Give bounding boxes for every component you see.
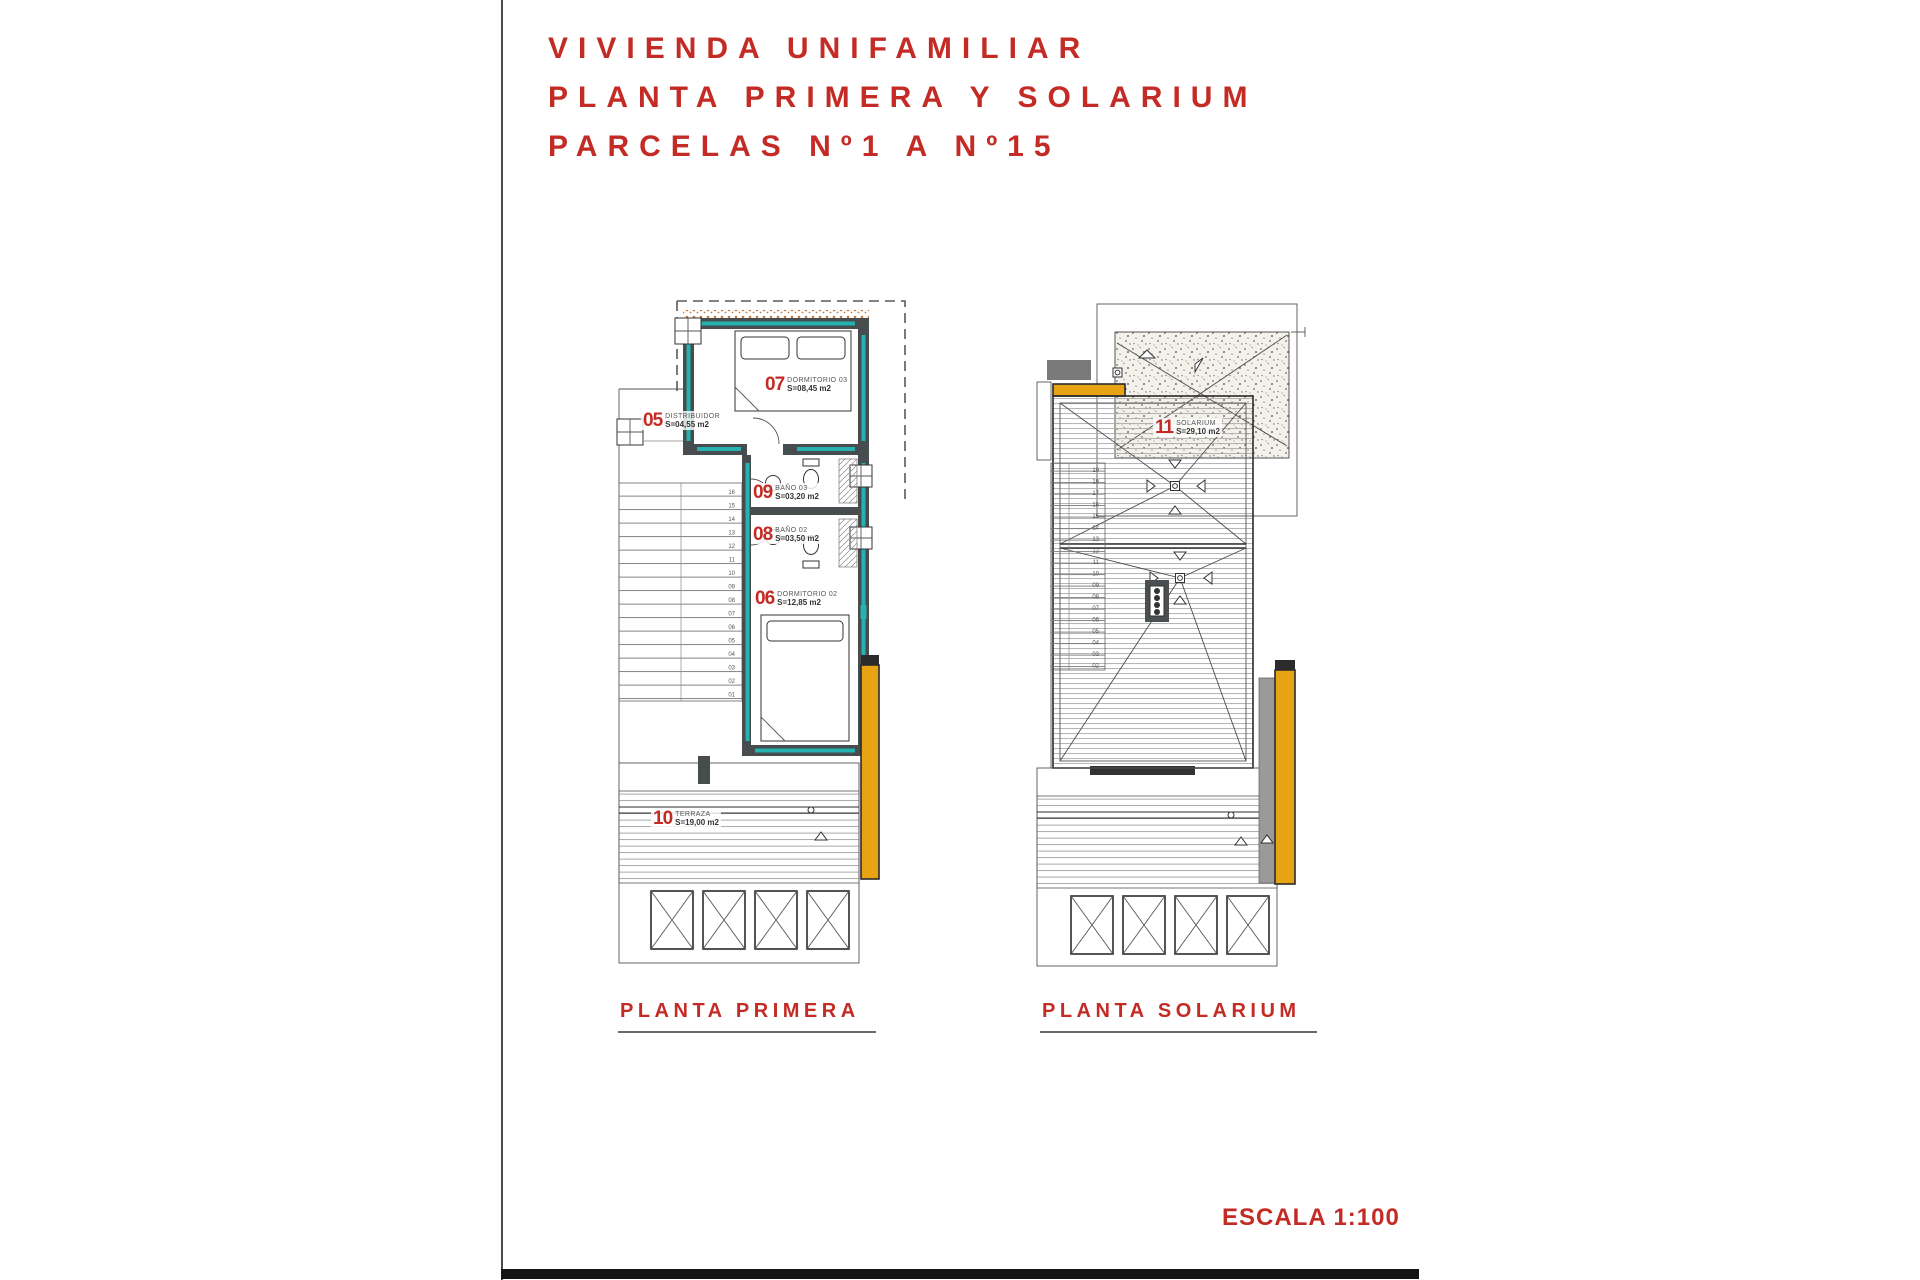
sheet-bottom-bar bbox=[501, 1269, 1419, 1279]
room-label-terraza: 10 TERRAZA S=19,00 m2 bbox=[651, 809, 721, 828]
svg-text:07: 07 bbox=[728, 612, 735, 618]
orange-balcony-bar bbox=[861, 655, 879, 879]
room-area: S=12,85 m2 bbox=[777, 599, 837, 607]
room-name: SOLARIUM bbox=[1176, 420, 1220, 427]
floor-plan-primera-drawing: 16151413121110090807060504030201 bbox=[615, 293, 910, 983]
svg-text:14: 14 bbox=[728, 517, 735, 523]
svg-text:04: 04 bbox=[1092, 641, 1099, 647]
bed-icon-dormitorio-03 bbox=[735, 331, 851, 411]
svg-text:16: 16 bbox=[1092, 503, 1099, 509]
svg-text:14: 14 bbox=[1092, 526, 1099, 532]
room-area: S=08,45 m2 bbox=[787, 385, 847, 393]
door-swing bbox=[753, 418, 779, 444]
svg-text:08: 08 bbox=[728, 598, 735, 604]
plan-caption-solarium: PLANTA SOLARIUM bbox=[1040, 1000, 1317, 1033]
svg-text:09: 09 bbox=[728, 585, 735, 591]
drain-icon bbox=[1176, 574, 1185, 583]
bed-icon-dormitorio-02 bbox=[761, 615, 849, 741]
brick-fringe bbox=[683, 310, 869, 318]
floor-plan-solarium: 191817161514131211100908070605040302 bbox=[1035, 298, 1345, 978]
svg-text:11: 11 bbox=[729, 558, 736, 564]
room-number: 07 bbox=[765, 376, 784, 393]
shower-icon bbox=[839, 519, 857, 567]
svg-text:05: 05 bbox=[728, 639, 735, 645]
svg-text:07: 07 bbox=[1092, 606, 1099, 612]
room-area: S=29,10 m2 bbox=[1176, 428, 1220, 436]
room-name: BAÑO 02 bbox=[775, 527, 819, 534]
room-number: 08 bbox=[753, 526, 772, 543]
svg-text:02: 02 bbox=[1092, 664, 1099, 670]
terrace-deck bbox=[1037, 768, 1277, 966]
svg-text:08: 08 bbox=[1092, 595, 1099, 601]
drain-icon bbox=[1171, 482, 1180, 491]
svg-text:19: 19 bbox=[1092, 468, 1099, 474]
room-name: TERRAZA bbox=[675, 811, 719, 818]
window-icon bbox=[675, 318, 701, 344]
svg-text:13: 13 bbox=[1092, 537, 1099, 543]
svg-text:04: 04 bbox=[728, 652, 735, 658]
svg-text:06: 06 bbox=[728, 625, 735, 631]
drain-icon bbox=[1113, 368, 1122, 377]
chimney-icon bbox=[1145, 580, 1169, 622]
grey-wall-strip bbox=[1259, 678, 1275, 883]
svg-text:15: 15 bbox=[728, 504, 735, 510]
room-number: 09 bbox=[753, 484, 772, 501]
svg-text:11: 11 bbox=[1093, 560, 1100, 566]
svg-text:12: 12 bbox=[1092, 549, 1099, 555]
room-label-dormitorio-02: 06 DORMITORIO 02 S=12,85 m2 bbox=[753, 589, 839, 608]
svg-text:13: 13 bbox=[728, 531, 735, 537]
shower-icon bbox=[839, 459, 857, 503]
room-label-distribuidor: 05 DISTRIBUIDOR S=04,55 m2 bbox=[641, 411, 722, 430]
title-line-3: PARCELAS Nº1 A Nº15 bbox=[548, 122, 1257, 171]
sheet-border-line bbox=[501, 0, 503, 1280]
svg-text:10: 10 bbox=[1092, 572, 1099, 578]
room-area: S=19,00 m2 bbox=[675, 819, 719, 827]
terrace-deck bbox=[619, 756, 859, 963]
room-label-dormitorio-03: 07 DORMITORIO 03 S=08,45 m2 bbox=[763, 375, 849, 394]
room-label-bano-03: 09 BAÑO 03 S=03,20 m2 bbox=[751, 483, 821, 502]
room-number: 06 bbox=[755, 590, 774, 607]
floor-plan-primera: 16151413121110090807060504030201 bbox=[615, 293, 910, 983]
drawing-sheet: VIVIENDA UNIFAMILIAR PLANTA PRIMERA Y SO… bbox=[0, 0, 1920, 1280]
svg-text:03: 03 bbox=[1092, 652, 1099, 658]
svg-text:02: 02 bbox=[728, 679, 735, 685]
room-number: 05 bbox=[643, 412, 662, 429]
svg-text:15: 15 bbox=[1092, 514, 1099, 520]
plan-caption-primera: PLANTA PRIMERA bbox=[618, 1000, 876, 1033]
room-number: 11 bbox=[1155, 419, 1173, 436]
title-line-2: PLANTA PRIMERA Y SOLARIUM bbox=[548, 73, 1257, 122]
svg-text:18: 18 bbox=[1092, 480, 1099, 486]
svg-text:17: 17 bbox=[1092, 491, 1099, 497]
title-line-1: VIVIENDA UNIFAMILIAR bbox=[548, 24, 1257, 73]
room-area: S=03,50 m2 bbox=[775, 535, 819, 543]
drawing-title: VIVIENDA UNIFAMILIAR PLANTA PRIMERA Y SO… bbox=[548, 24, 1257, 171]
svg-text:12: 12 bbox=[728, 544, 735, 550]
room-name: DORMITORIO 02 bbox=[777, 591, 837, 598]
orange-parapet-bar bbox=[1053, 384, 1125, 396]
window-icon bbox=[617, 419, 643, 445]
room-name: BAÑO 03 bbox=[775, 485, 819, 492]
svg-text:06: 06 bbox=[1092, 618, 1099, 624]
svg-text:09: 09 bbox=[1092, 583, 1099, 589]
room-area: S=04,55 m2 bbox=[665, 421, 720, 429]
svg-text:16: 16 bbox=[728, 490, 735, 496]
room-label-solarium: 11 SOLARIUM S=29,10 m2 bbox=[1153, 418, 1222, 437]
svg-text:03: 03 bbox=[728, 666, 735, 672]
orange-balcony-bar bbox=[1259, 660, 1295, 884]
pergola-squares bbox=[651, 891, 849, 949]
floor-plan-solarium-drawing: 191817161514131211100908070605040302 bbox=[1035, 298, 1345, 978]
svg-text:01: 01 bbox=[728, 693, 735, 699]
room-label-bano-02: 08 BAÑO 02 S=03,50 m2 bbox=[751, 525, 821, 544]
room-area: S=03,20 m2 bbox=[775, 493, 819, 501]
room-name: DISTRIBUIDOR bbox=[665, 413, 720, 420]
svg-text:05: 05 bbox=[1092, 629, 1099, 635]
room-name: DORMITORIO 03 bbox=[787, 377, 847, 384]
scale-label: ESCALA 1:100 bbox=[1222, 1204, 1400, 1232]
room-number: 10 bbox=[653, 810, 672, 827]
pergola-squares bbox=[1071, 896, 1269, 954]
svg-text:10: 10 bbox=[728, 571, 735, 577]
